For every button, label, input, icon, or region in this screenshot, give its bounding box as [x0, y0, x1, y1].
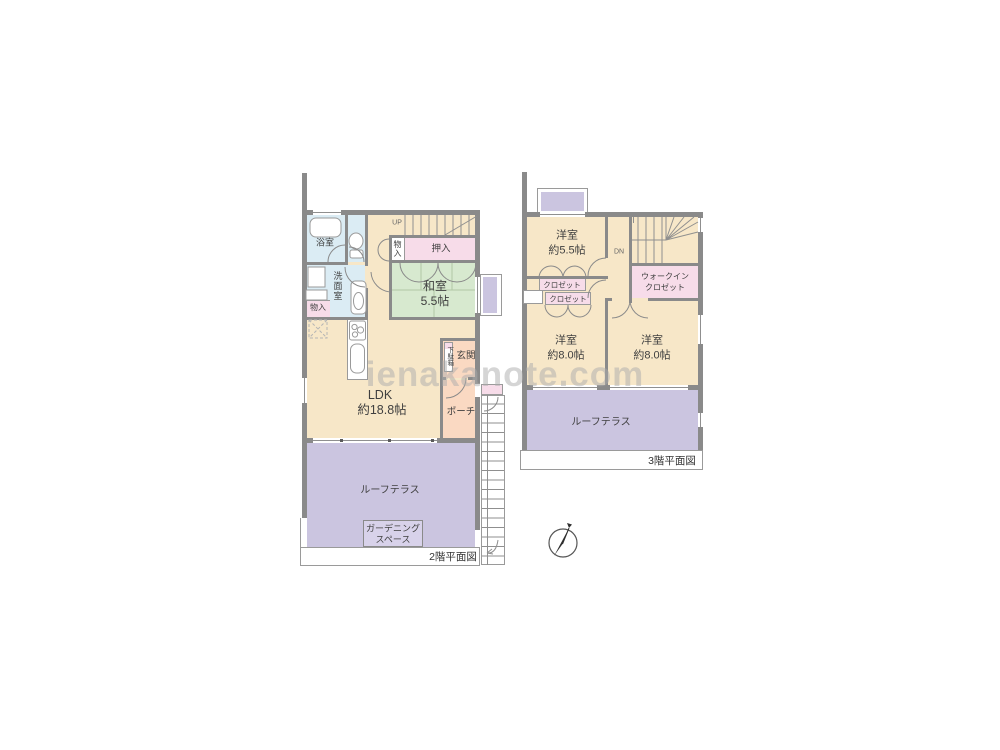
floor2-title: 2階平面図	[429, 552, 477, 563]
compass-icon	[549, 523, 577, 557]
f3-stairs-down	[632, 217, 698, 263]
f2-exterior-stairs-treads	[482, 395, 504, 565]
room-size-washitsu: 5.5帖	[421, 295, 450, 307]
room-label-washitsu: 和室	[423, 280, 447, 292]
room-label-roof-terrace-3f: ルーフテラス	[571, 418, 630, 428]
label-closet2: クロゼット	[549, 295, 587, 303]
room-label-bedroom2: 洋室	[555, 336, 577, 347]
watermark: ienakanote.com	[366, 355, 645, 395]
label-gardening-2: スペース	[376, 536, 411, 545]
room-label-storage: 物入	[393, 240, 401, 258]
label-walkin-closet-1: ウォークイン	[641, 273, 689, 281]
room-label-bedroom3: 洋室	[641, 336, 663, 347]
washer-space	[308, 267, 325, 287]
bathtub	[310, 218, 341, 237]
shelf	[306, 290, 327, 300]
room-label-washroom: 洗面室	[333, 271, 342, 301]
kitchen-sink	[351, 344, 365, 373]
label-gardening-1: ガーデニング	[366, 525, 420, 534]
stairs-up-label: UP	[392, 220, 402, 227]
f2-stairs-up	[405, 215, 477, 235]
room-label-porch: ポーチ	[447, 407, 476, 417]
toilet-bowl	[349, 233, 363, 249]
stairs-down-label: DN	[614, 249, 624, 256]
room-label-oshiire: 押入	[431, 244, 450, 254]
label-walkin-closet-2: クロゼット	[645, 284, 685, 292]
room-label-bedroom1: 洋室	[556, 231, 578, 242]
floor3-title: 3階平面図	[648, 456, 696, 467]
f2-service-space	[309, 320, 327, 338]
room-label-bath: 浴室	[316, 239, 334, 248]
toilet-tank	[350, 250, 363, 258]
room-label-roof-terrace: ルーフテラス	[360, 486, 419, 496]
label-closet1: クロゼット	[543, 281, 581, 289]
room-size-bedroom1: 約5.5帖	[548, 246, 585, 257]
room-size-ldk: 約18.8帖	[357, 404, 406, 417]
floor-plan-canvas: 浴室 洗面室 物入 UP 物入 押入 和室 5.5帖 LDK 約18.8帖 下駄…	[0, 0, 1000, 750]
room-label-storage: 物入	[310, 304, 326, 312]
